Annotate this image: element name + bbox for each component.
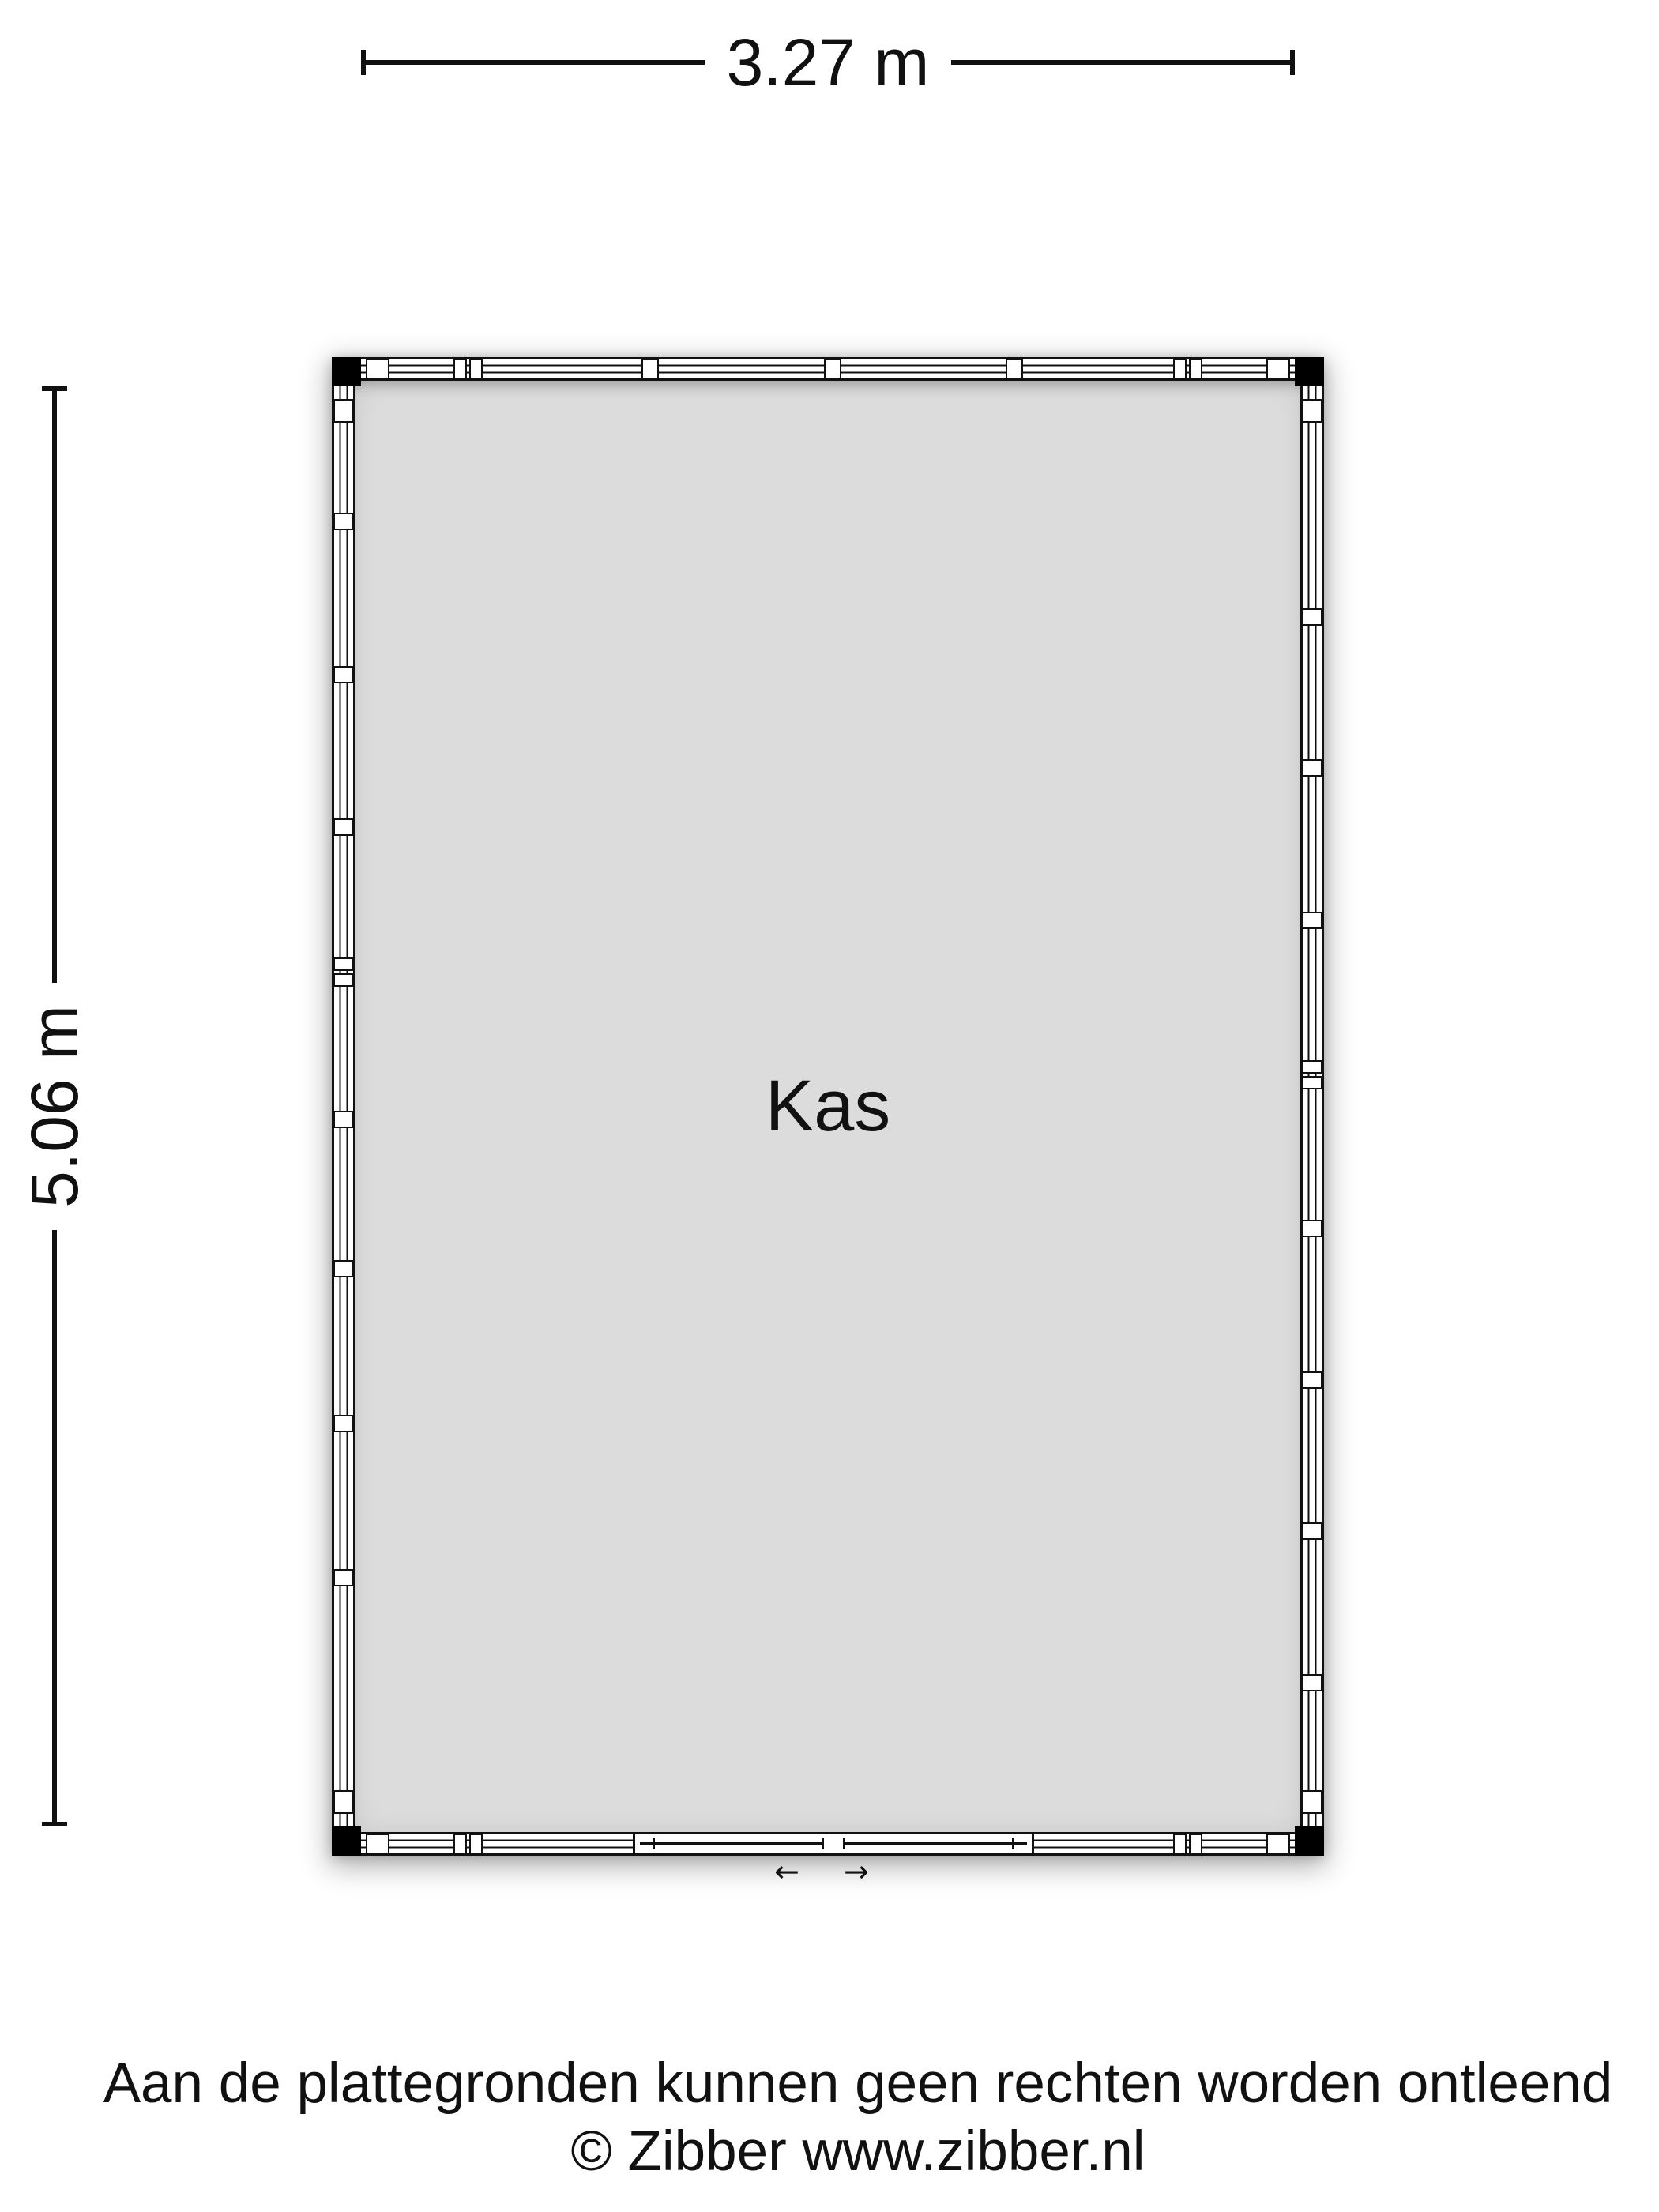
glazing-post xyxy=(333,666,354,683)
door-center-stile xyxy=(822,1838,824,1849)
corner-post-bottom-right xyxy=(1295,1826,1324,1856)
glazing-post xyxy=(333,973,354,987)
glazing-post xyxy=(1302,1371,1322,1389)
glass-wall-left xyxy=(332,357,355,1856)
dimension-line xyxy=(951,60,1290,65)
glazing-post xyxy=(333,513,354,530)
glazing-post xyxy=(1189,359,1202,379)
footer-copyright: © Zibber www.zibber.nl xyxy=(68,2119,1648,2185)
corner-post-top-right xyxy=(1295,357,1324,386)
glazing-post xyxy=(1189,1834,1202,1854)
glazing-post xyxy=(1266,1834,1290,1854)
dimension-line xyxy=(52,1230,57,1822)
glass-wall-bottom xyxy=(332,1832,1324,1856)
glazing-post xyxy=(1302,1076,1322,1089)
glazing-post xyxy=(1302,1674,1322,1691)
glazing-post xyxy=(453,1834,467,1854)
glazing-post xyxy=(1266,359,1290,379)
glazing-post xyxy=(333,1790,354,1814)
glazing-post xyxy=(824,359,841,379)
glazing-post xyxy=(641,359,659,379)
glazing-post xyxy=(333,957,354,971)
glass-wall-top xyxy=(332,357,1324,381)
corner-post-top-left xyxy=(332,357,361,386)
dimension-width: 3.27 m xyxy=(361,36,1295,88)
glazing-post xyxy=(1302,1220,1322,1237)
dimension-height: 5.06 m xyxy=(28,386,81,1826)
glazing-post xyxy=(453,359,467,379)
glazing-post xyxy=(333,399,354,423)
dimension-width-label: 3.27 m xyxy=(705,29,952,96)
glass-wall-right xyxy=(1300,357,1324,1856)
glazing-post xyxy=(333,1569,354,1586)
footer: Aan de plattegronden kunnen geen rechten… xyxy=(68,2051,1648,2185)
greenhouse-floor-plan: Kas ← → xyxy=(332,357,1324,1856)
dimension-height-label: 5.06 m xyxy=(21,983,88,1230)
glazing-post xyxy=(333,818,354,836)
dimension-end-tick xyxy=(1290,50,1295,75)
door-panel-right xyxy=(843,1842,1027,1845)
dimension-line xyxy=(366,60,705,65)
glazing-post xyxy=(333,1260,354,1277)
footer-disclaimer: Aan de plattegronden kunnen geen rechten… xyxy=(68,2051,1648,2117)
glazing-post xyxy=(366,359,389,379)
glazing-post xyxy=(1302,399,1322,423)
glazing-post xyxy=(1173,1834,1187,1854)
glazing-post xyxy=(1302,1522,1322,1540)
sliding-door xyxy=(633,1832,1034,1856)
dimension-line xyxy=(52,391,57,983)
glazing-post xyxy=(1302,1790,1322,1814)
slide-direction-right-icon: → xyxy=(844,1856,869,1887)
door-end-stop xyxy=(653,1838,655,1849)
glazing-post xyxy=(1302,912,1322,929)
room-label: Kas xyxy=(766,1065,891,1148)
glazing-post xyxy=(333,1415,354,1432)
dimension-end-tick xyxy=(42,1822,67,1826)
glazing-post xyxy=(469,1834,483,1854)
glazing-post xyxy=(1302,1060,1322,1074)
glazing-post xyxy=(469,359,483,379)
glazing-post xyxy=(366,1834,389,1854)
door-panel-left xyxy=(640,1842,824,1845)
door-center-stile xyxy=(843,1838,845,1849)
glazing-post xyxy=(1302,759,1322,777)
glazing-post xyxy=(1302,608,1322,626)
room-kas: Kas xyxy=(352,378,1303,1835)
glazing-post xyxy=(1173,359,1187,379)
door-end-stop xyxy=(1012,1838,1014,1849)
glazing-post xyxy=(1006,359,1023,379)
slide-direction-left-icon: ← xyxy=(774,1856,799,1887)
corner-post-bottom-left xyxy=(332,1826,361,1856)
glazing-post xyxy=(333,1111,354,1128)
